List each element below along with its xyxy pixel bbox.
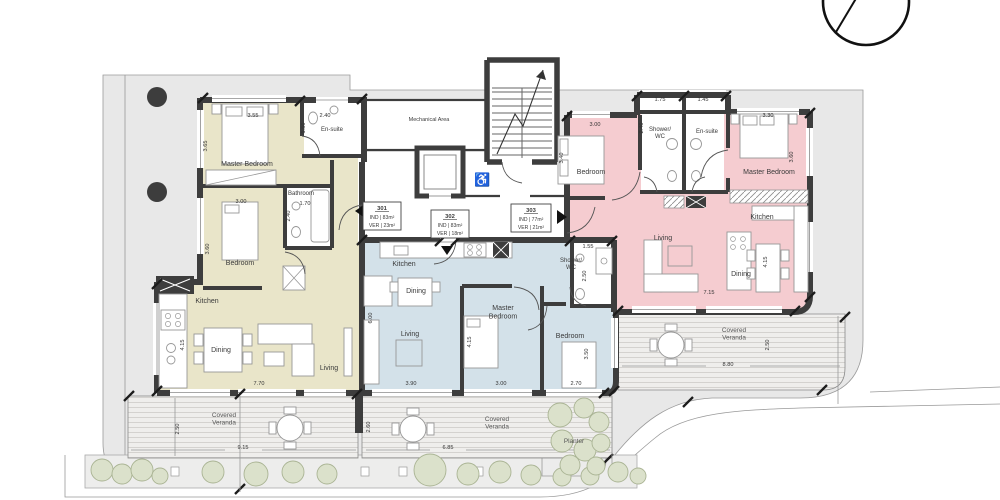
bathtub	[311, 190, 329, 242]
room-label: En-suite	[321, 127, 344, 133]
wardrobe	[730, 190, 808, 203]
room-label: En-suite	[696, 129, 719, 135]
dim-label: 2.50	[765, 340, 771, 351]
dim-label: 3.50	[584, 349, 590, 360]
room-label: Living	[320, 365, 338, 372]
veranda-label: CoveredVeranda	[722, 327, 747, 342]
dim-label: 3.00	[496, 381, 507, 387]
room-label: Living	[401, 331, 419, 338]
room-label: Bathroom	[288, 191, 314, 197]
dim-label: 3.90	[406, 381, 417, 387]
dim-label: 3.00	[590, 122, 601, 128]
room-label: MasterBedroom	[489, 305, 518, 320]
unit-302-number: 302	[445, 214, 455, 220]
veranda-label: CoveredVeranda	[485, 416, 510, 431]
dim-label: 2.50	[175, 424, 181, 435]
room-label: Master Bedroom	[743, 169, 795, 176]
dim-label: 2.40	[639, 123, 645, 134]
coffee-table	[264, 352, 284, 366]
sink	[691, 139, 702, 150]
dim-label: 7.70	[254, 381, 265, 387]
room-label: Dining	[406, 288, 426, 295]
veranda-label: CoveredVeranda	[212, 412, 237, 427]
dim-label: 1.70	[300, 201, 311, 207]
sofa	[364, 320, 379, 384]
island	[364, 276, 392, 306]
cooker	[161, 310, 185, 330]
kerb-line-2	[870, 387, 1000, 392]
dim-label: 2.40	[286, 211, 292, 222]
dim-label: 1.50	[301, 123, 307, 134]
floor-plan-drawing: ♿	[0, 0, 1000, 500]
dim-label: 4.15	[180, 340, 186, 351]
sink	[330, 106, 338, 114]
dim-label: 1.75	[655, 97, 666, 103]
tv-unit	[344, 328, 352, 376]
dim-label: 4.15	[467, 337, 473, 348]
toilet	[292, 227, 301, 238]
dim-label: 2.50	[582, 271, 588, 282]
mechanical-area-room	[364, 100, 487, 150]
room-label: Kitchen	[195, 298, 218, 305]
toilet	[668, 171, 677, 182]
closet	[664, 196, 684, 208]
veranda-divider-wall	[355, 393, 363, 433]
dim-label: 2.40	[320, 113, 331, 119]
room-label: Living	[654, 235, 672, 242]
room-label: Bedroom	[226, 260, 255, 267]
room-label: Kitchen	[750, 214, 773, 221]
sink	[667, 139, 678, 150]
north-arrow-icon	[823, 0, 909, 45]
unit-303-ind: IND | 77m²	[519, 217, 544, 223]
dim-label: 2.70	[571, 381, 582, 387]
toilet	[576, 289, 585, 300]
dim-label: 3.60	[789, 152, 795, 163]
room-label: Dining	[211, 347, 231, 354]
dim-label: 3.65	[203, 141, 209, 152]
dim-label: 1.45	[698, 97, 709, 103]
kitchen-counter	[794, 206, 808, 292]
site-column	[147, 182, 167, 202]
room-label: Dining	[731, 271, 751, 278]
room-label: Master Bedroom	[221, 161, 273, 168]
wheelchair-icon: ♿	[474, 172, 490, 187]
sink	[394, 246, 408, 255]
unit-302-ver: VER | 18m²	[437, 231, 464, 237]
dim-label: 8.80	[723, 362, 734, 368]
dim-label: 3.40	[559, 153, 565, 164]
room-label: Bedroom	[556, 333, 585, 340]
dim-label: 6.00	[368, 313, 374, 324]
room-label: Bedroom	[577, 169, 606, 176]
cooker	[464, 243, 486, 257]
unit-303-number: 303	[526, 208, 536, 214]
dim-label: 6.85	[443, 445, 454, 451]
unit-302-ind: IND | 83m²	[438, 223, 463, 229]
room-label: Kitchen	[392, 261, 415, 268]
mechanical-area-label: Mechanical Area	[409, 117, 451, 123]
dim-label: 4.15	[763, 257, 769, 268]
dim-label: 3.55	[248, 113, 259, 119]
unit-303-ver: VER | 21m²	[518, 225, 545, 231]
veranda-303-deck	[618, 314, 845, 390]
sink	[167, 356, 175, 364]
toilet	[309, 112, 318, 124]
planter-label: Planter	[564, 438, 585, 445]
unit-301-ver: VER | 23m²	[369, 223, 396, 229]
unit-301-number: 301	[377, 206, 387, 212]
dim-label: 2.60	[366, 422, 372, 433]
unit-301-ind: IND | 83m²	[370, 215, 395, 221]
dim-label: 3.30	[763, 113, 774, 119]
dim-label: 3.00	[236, 199, 247, 205]
dim-label: 7.15	[704, 290, 715, 296]
floor-plan-page: ♿	[0, 0, 1000, 500]
dim-label: 9.15	[238, 445, 249, 451]
sink	[167, 344, 176, 353]
site-column	[147, 87, 167, 107]
toilet	[692, 171, 701, 182]
shower-stall	[596, 248, 612, 274]
sofa	[258, 324, 312, 344]
dim-label: 1.55	[583, 244, 594, 250]
dim-label: 3.60	[205, 244, 211, 255]
